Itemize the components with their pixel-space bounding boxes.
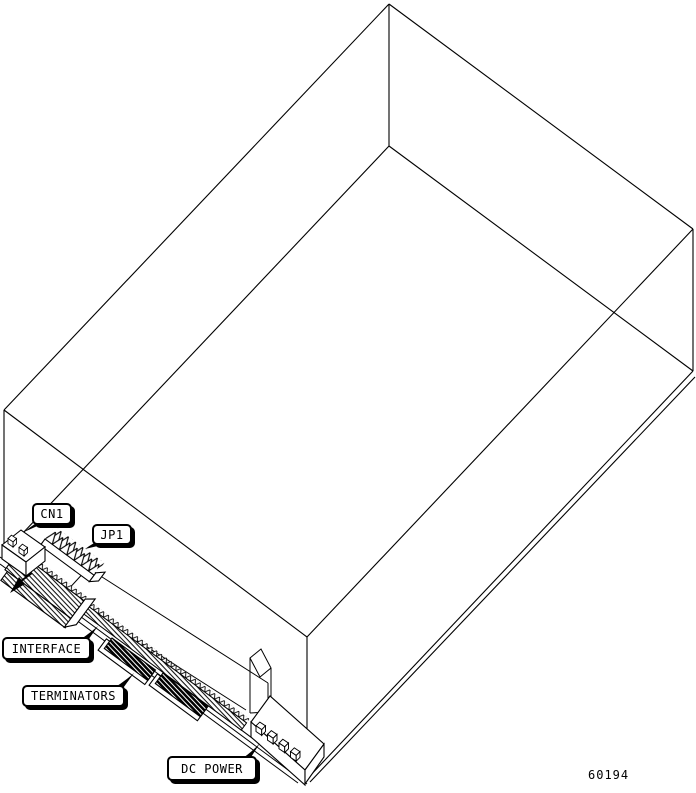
callout-jp1-label: JP1 <box>100 528 123 542</box>
dc-power-connector <box>251 696 324 785</box>
callout-cn1: CN1 <box>32 503 72 525</box>
callout-dc-power-label: DC POWER <box>181 762 243 776</box>
base-plate-edge <box>310 377 695 782</box>
pin-strip <box>79 599 250 730</box>
figure-part-number: 60194 <box>588 768 629 782</box>
callout-interface: INTERFACE <box>2 637 91 660</box>
technical-diagram: CN1 JP1 INTERFACE TERMINATORS DC POWER 6… <box>0 0 696 793</box>
callout-terminators: TERMINATORS <box>22 685 125 707</box>
diagram-canvas <box>0 0 696 793</box>
callout-interface-label: INTERFACE <box>12 642 82 656</box>
callout-cn1-label: CN1 <box>40 507 63 521</box>
drive-enclosure-wireframe <box>4 4 695 782</box>
callout-terminators-label: TERMINATORS <box>31 689 116 703</box>
callout-jp1: JP1 <box>92 524 132 545</box>
callout-dc-power: DC POWER <box>167 756 257 781</box>
